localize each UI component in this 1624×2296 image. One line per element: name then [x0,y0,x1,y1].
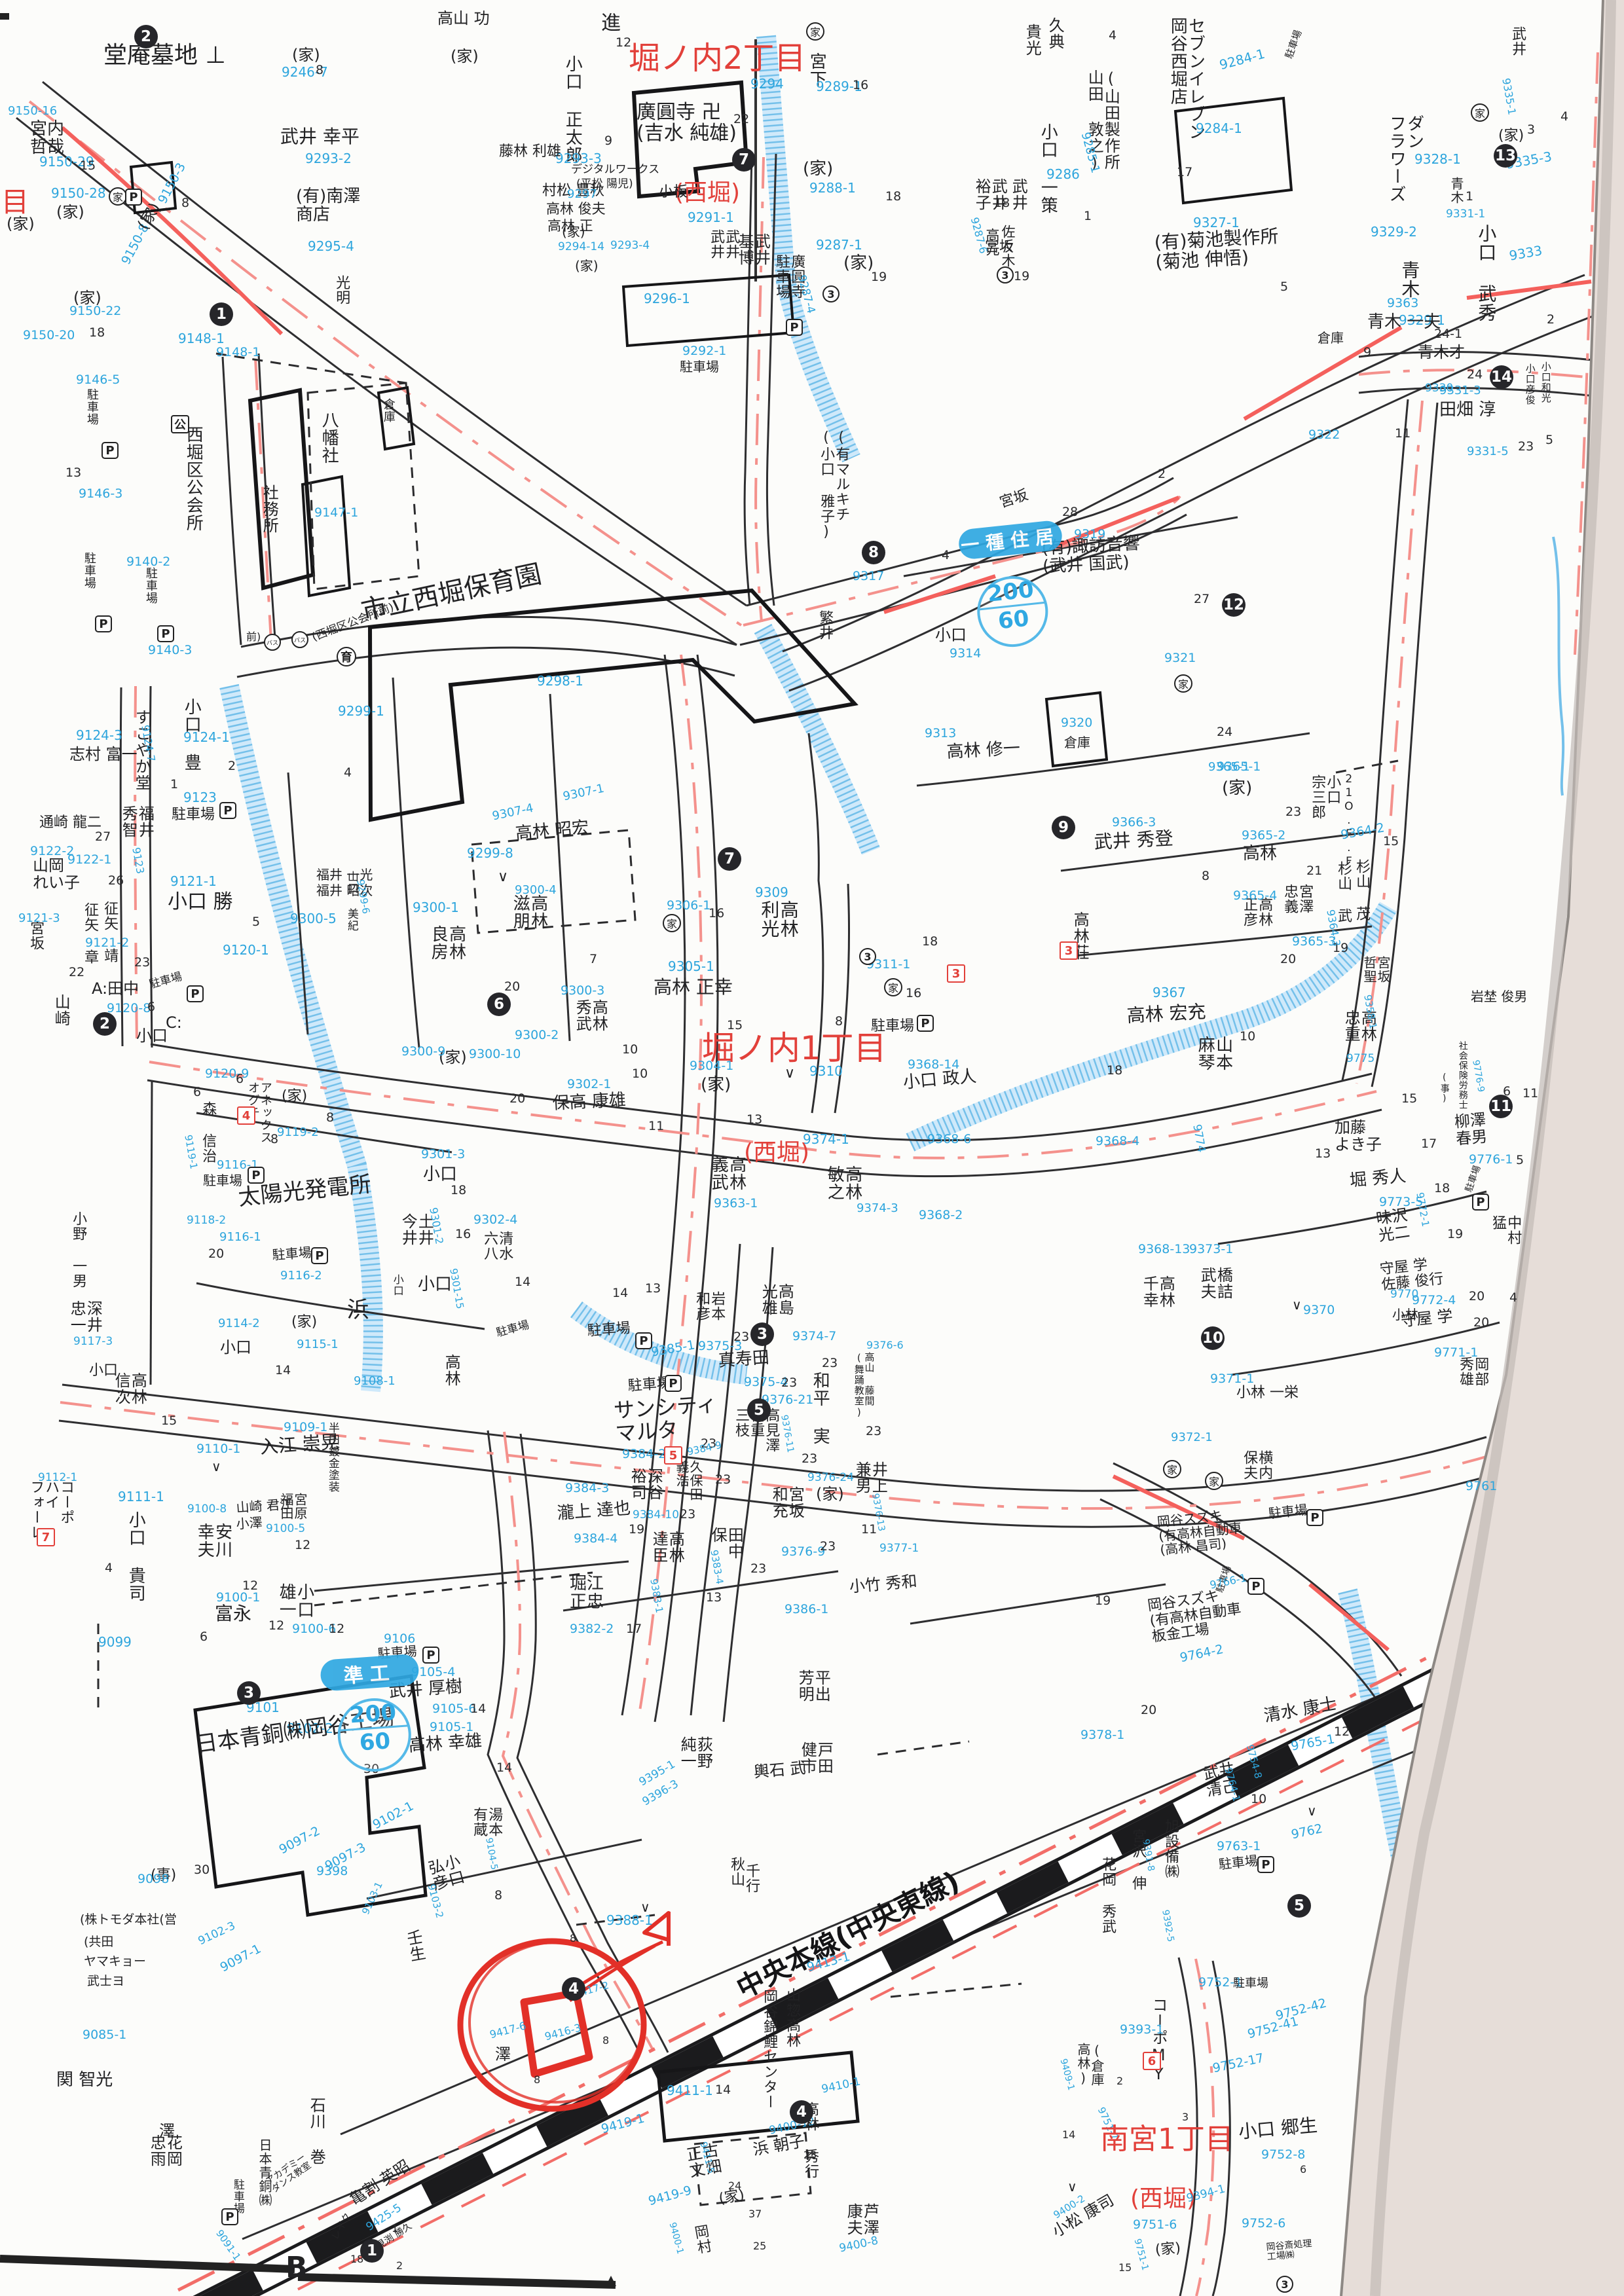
map-label: ∨ [498,869,508,885]
lot-ring-badge: 3 [859,948,876,965]
map-label: 宮原 福田 [279,1493,306,1520]
house-icon: 家 [663,914,681,932]
lot-number: 9374-1 [803,1133,849,1147]
map-label: (家) [282,1089,307,1104]
map-label: (家) [56,204,84,221]
parking-icon: P [1472,1194,1489,1211]
corner-number: 2 [1116,2075,1123,2086]
corner-number: 20 [504,980,520,994]
map-label: 倉庫 [382,398,394,423]
block-number-badge: 7 [718,847,741,871]
parking-icon: P [786,319,803,336]
house-icon: 家 [1174,674,1192,693]
lot-number: 9384-2 [622,1448,666,1461]
map-label: 駐車場 [680,360,719,374]
lot-number: 9329-2 [1371,225,1417,240]
district-label: 目 [1,187,29,217]
map-label: 通崎 龍二 [39,815,101,831]
map-label: 高林 義武 [709,1156,745,1191]
lot-number: 9288-1 [809,181,856,196]
lot-number: 9366-3 [1112,816,1156,829]
map-label: 柳澤 春男 [1454,1112,1488,1148]
lot-number: 9294 [750,77,784,92]
lot-number: 9150-28 [51,187,106,201]
map-label: (共田 [84,1935,113,1949]
lot-number: 9292-1 [682,344,726,358]
map-label: (家) [7,216,35,233]
corner-number: 6 [147,1000,155,1014]
map-label: 岡谷斎処理 工場㈱ [1266,2239,1313,2263]
lot-number: 9124-3 [76,729,122,743]
lot-number: 9099 [98,1635,132,1650]
map-label: 澤 [495,2047,511,2064]
lot-number: 9123 [183,791,217,805]
lot-number: 9299-8 [467,847,513,861]
map-label: 小野 一男 [71,1211,86,1288]
map-label: 高林 宏充 [1126,1002,1206,1027]
corner-number: 4 [1509,1291,1517,1305]
corner-number: 12 [329,1622,344,1636]
lot-number: 9331-1 [1446,208,1485,220]
corner-number: 19 [1095,1594,1111,1608]
map-label: ∨ [1292,1298,1302,1313]
corner-number: 27 [1194,592,1209,606]
map-label: 安川 幸夫 [195,1523,231,1558]
map-label: 宮澤 忠義 [1282,884,1312,914]
map-label: 湯本 有蔵 [471,1807,502,1837]
map-label: 岡部 秀雄 [1458,1357,1488,1387]
lot-number: 9384-4 [574,1532,618,1546]
corner-number: 19 [871,270,887,284]
lot-number: 9150-16 [8,105,57,117]
map-label: 高島 光雄 [760,1283,792,1316]
lot-number: 9368-14 [908,1058,959,1072]
corner-number: 25 [753,2240,766,2251]
map-label: 芦澤 康夫 [845,2203,877,2236]
corner-number: 1 [1466,190,1473,204]
parking-icon: P [101,442,119,459]
corner-number: 30 [194,1863,210,1877]
map-label: 征矢 靖 [102,901,117,963]
house-icon: 家 [109,187,127,206]
map-label: 駐車場 [144,567,157,604]
corner-number: 23 [680,1508,695,1522]
map-label: (事) [1439,1072,1449,1104]
corner-number: 10 [1251,1793,1266,1806]
map-label: 堂庵墓地 ⊥ [103,43,226,69]
map-label: (倉庫 高林) [1076,2043,1103,2086]
lot-number: 9146-3 [79,487,122,501]
corner-number: 18 [1107,1064,1122,1078]
map-label: ダン フラワーズ [1387,115,1423,203]
district-label: 堀ノ内1丁目 [702,1030,887,1066]
corner-number: 13 [706,1591,722,1605]
block-number-badge: 6 [487,993,511,1016]
lot-number: 9116-1 [219,1231,261,1243]
lot-number: 9121-3 [18,912,60,924]
corner-number: 23 [802,1452,817,1466]
map-label: (家) [803,160,833,178]
map-label: 武井 [1010,178,1026,211]
map-label: ヤマキョー [84,1955,146,1969]
lot-number: 9322 [1308,428,1340,442]
map-label: 小口 [220,1339,251,1357]
lot-number: 9100-5 [266,1523,305,1535]
corner-number: 15 [1401,1092,1417,1106]
sheet-marker: B [286,2252,308,2284]
map-label: 岡谷スズキ (有高林自動車 (高林 昌司) [1156,1507,1244,1558]
corner-number: 14 [275,1364,291,1377]
map-label: 杉山 武 [1336,861,1351,923]
house-icon: 家 [1163,1460,1181,1478]
corner-number: 4 [1109,29,1116,43]
corner-number: 2 [1547,313,1555,327]
map-label: A:田中 [92,981,139,998]
lot-number: 9284-1 [1196,122,1242,136]
map-label: 福井 秀智 [120,805,153,838]
lot-number: 9310 [809,1065,843,1079]
lot-number: 9382-2 [570,1622,614,1636]
corner-number: 23 [822,1357,838,1370]
map-label: 森 信治 [200,1101,215,1163]
lot-number: 9365-2 [1242,829,1285,843]
lot-number: 9120-1 [223,943,269,958]
corner-number: 5 [1280,280,1288,294]
corner-number: 8 [1202,869,1209,883]
lot-number: 9377-1 [879,1542,919,1554]
parking-icon: P [1247,1578,1264,1595]
lot-number: 9117-3 [73,1336,113,1347]
map-label: 千行 [744,1863,759,1893]
map-label: 半田鍍金塗装 [326,1422,338,1493]
lot-ring-badge: 3 [822,285,840,302]
parking-icon: P [311,1247,328,1264]
district-label: (西堀) [744,1140,809,1166]
map-label: 小林 [1392,1308,1418,1322]
map-label: 荻野 純一 [678,1736,711,1769]
lot-number: 9393-1 [1120,2023,1164,2037]
block-number-badge: 4 [562,1977,585,2001]
lot-number: 9300-9 [401,1045,445,1059]
lot-number: 9116-2 [280,1269,322,1282]
nursery-icon: 育 [337,647,356,666]
map-label: 志村 富一 [69,746,138,763]
map-label: 高山 功 [437,10,490,27]
corner-number: 12 [295,1539,310,1552]
map-label: 小口 勝 [168,892,233,913]
corner-number: 20 [1141,1704,1156,1717]
corner-number: 22 [733,113,749,126]
lot-number: 9365-1 [1208,761,1250,773]
lot-number: 9314 [950,647,981,661]
corner-number: 7 [589,953,597,966]
map-label: 青木 [1400,261,1419,299]
map-label: ∨ [1067,2180,1077,2195]
map-label: 旭設備㈱ [1163,1819,1178,1879]
map-label: (家) [1498,128,1524,144]
map-label: 宮坂 和充 [770,1486,803,1519]
lot-number: 9368-2 [919,1209,963,1222]
map-label: 前) [246,631,261,642]
corner-number: 18 [885,190,901,204]
lot-number: 9118-2 [187,1214,226,1226]
map-label: 小口和光 [1540,361,1551,403]
corner-number: 5 [1545,433,1553,447]
map-label: 貴光 [1024,24,1040,56]
map-label: 岩本 和彦 [694,1291,724,1321]
corner-number: 23 [820,1540,836,1554]
map-label: 高林 秀武 [574,999,606,1032]
lot-number: 9331-5 [1467,445,1509,458]
map-label: 久保田 義浩 [674,1460,702,1501]
map-label: 高林 滋朋 [511,894,547,930]
lot-number: 9121-2 [85,936,129,950]
map-label: 関 智光 [56,2071,113,2089]
map-label: 高林 俊夫 [546,202,606,217]
map-label: (家) [1154,2241,1181,2259]
corner-number: 8 [316,64,323,77]
lot-number: 9299-1 [338,704,384,719]
map-label: 高林 [1243,845,1277,863]
parking-icon: P [95,615,112,632]
map-label: ∨ [784,1066,795,1082]
lot-number: 9147-1 [314,506,358,520]
corner-number: 8 [534,2074,540,2085]
map-label: 武井 裕子 [973,178,1006,211]
map-label: 宮坂 [985,240,1014,255]
map-label: 武士ヨ [87,1975,124,1988]
lot-number: 9776-1 [1469,1153,1513,1167]
parking-icon: P [219,802,236,819]
map-label: 青木 [1449,177,1463,204]
corner-number: 13 [1315,1147,1331,1161]
lot-number: 9371-1 [1210,1372,1254,1386]
parking-icon: P [221,2208,238,2225]
corner-number: 11 [1395,427,1411,441]
corner-number: 10 [622,1043,638,1057]
lot-number: 9365-4 [1233,889,1277,903]
parking-icon: P [665,1375,682,1392]
corner-number: 16 [906,987,921,1000]
map-label: 武井 幸平 [280,127,360,147]
map-label: 駐車場 [871,1019,914,1034]
parking-icon: P [157,625,174,642]
lot-number: 9374-3 [857,1202,898,1214]
block-number-badge: 3 [237,1681,261,1705]
block-number-badge: 5 [747,1398,771,1422]
map-label: 土井 今井 [399,1213,432,1246]
lot-number: 9298-1 [537,674,583,689]
corner-number: 10 [632,1067,648,1081]
corner-number: 8 [494,1889,502,1903]
corner-number: 4 [1560,110,1568,124]
map-label: 浜 [347,1298,369,1322]
lot-number: 9388-1 [606,1914,653,1928]
lot-number: 9374-7 [792,1330,836,1343]
map-label: 小口 [89,1363,118,1379]
lot-number: 9363-1 [714,1197,758,1211]
lot-number: 9372-1 [1171,1431,1213,1444]
block-number-badge: 3 [750,1322,774,1346]
house-icon: 家 [884,978,902,996]
corner-number: 20 [1280,953,1296,966]
lot-number: 9300-10 [469,1048,521,1061]
lot-number: 9770 [1390,1288,1418,1300]
lot-number: 9411-1 [667,2084,713,2098]
map-page: 堂庵墓地 ⊥宮内 哲哉9150-29159150-28(家)9150-16915… [0,0,1624,2296]
parking-icon: P [248,1167,265,1184]
map-label: 保高 康雄 [552,1091,627,1113]
lot-number: 9368-4 [1096,1135,1139,1148]
lot-number: 9122-1 [67,853,111,867]
lot-ring-badge: 3 [997,266,1014,283]
map-label: 小口 [423,1165,457,1184]
map-label: 石川 巻 [308,2097,324,2165]
lot-number: 9114-2 [218,1317,260,1330]
corner-number: 16 [853,79,868,92]
lot-number: 9119-2 [277,1126,319,1139]
map-label: (家) [451,48,479,65]
map-label: 岡谷錦鯉センター [762,1989,777,2109]
lot-number: 9363 [1387,297,1418,310]
map-label: 山本 麻琴 [1196,1036,1232,1071]
corner-number: 26 [108,874,124,888]
map-label: 小口 雄一 [277,1583,313,1618]
map-label: 橋詰 武夫 [1198,1267,1231,1300]
lot-number: 9300-2 [515,1029,559,1042]
lot-number: 9368-6 [927,1133,971,1146]
lot-number: 9294-14 [558,241,604,253]
map-label: 小口 [392,1274,403,1296]
corner-number: 23 [750,1562,766,1576]
district-label: 堀ノ内2丁目 [629,42,806,76]
block-number-badge: 7 [732,148,756,172]
corner-number: 13 [747,1113,762,1127]
map-label: 藤林 利雄 [499,144,561,160]
map-label: 花岡 秀武 [1100,1857,1115,1934]
corner-number: 17 [626,1622,642,1636]
map-label: デジタルワークス [571,164,659,175]
corner-number: 11 [1522,1087,1538,1101]
map-label: 深谷 裕司 [629,1468,661,1501]
lot-number: 9293-4 [610,240,650,251]
corner-number: 14 [470,1702,486,1716]
lot-number: 9319 [1074,528,1105,541]
map-label: 平出 芳明 [796,1669,829,1702]
block-number-badge: 5 [1287,1894,1311,1918]
lot-number: 9121-1 [170,875,217,889]
map-label: 横内 保夫 [1242,1450,1272,1480]
corner-number: 2 [228,759,236,773]
lot-number: 9398 [316,1865,348,1878]
lot-number: 9100-8 [187,1503,227,1515]
map-label: 高林 千幸 [1141,1275,1173,1308]
map-label: 高林 [443,1354,459,1387]
map-label: (有)南澤 商店 [296,187,360,224]
corner-number: 16 [455,1228,471,1241]
red-box-badge: 3 [947,964,965,983]
lot-number: 9098 [138,1872,169,1886]
house-icon: 家 [806,22,824,41]
lot-number: 9367 [1153,986,1186,1000]
red-box-badge: 6 [1143,2052,1161,2070]
corner-number: 15 [1118,2262,1132,2273]
map-label: 武井 武井 [709,229,739,259]
house-icon: 家 [1205,1472,1223,1490]
corner-number: 23 [1518,440,1534,454]
map-label: 駐車場 [587,1321,631,1339]
red-box-badge: 7 [37,1528,55,1546]
corner-number: 8 [835,1015,843,1029]
lot-number: 9150-20 [23,329,75,342]
block-number-badge: 1 [210,302,233,326]
lot-number: 9301-3 [421,1148,465,1161]
map-label: 真寿田 [718,1349,770,1370]
map-label: 山崎 [52,994,69,1027]
lot-number: 9295-4 [308,240,354,254]
corner-number: 19 [1447,1228,1463,1241]
corner-number: 3 [1527,123,1535,137]
parking-icon: P [187,985,204,1002]
lot-number: 9376-9 [781,1545,825,1559]
corner-number: 23 [781,1376,797,1390]
map-label: 高山 藤間 (舞踊教室) [853,1352,874,1419]
corner-number: 21 [1306,864,1322,878]
map-label: 小口 貴司 [126,1511,144,1602]
map-label: 久典 [1046,17,1063,50]
corner-number: 22 [69,966,84,979]
lot-number: 9327-1 [1193,216,1240,230]
map-label: ∨ [212,1460,221,1474]
corner-number: 8 [181,196,189,210]
corner-number: 23 [866,1425,881,1438]
map-label: 進 [601,13,621,34]
block-number-badge: 1 [360,2239,384,2263]
lot-number: 9751-6 [1133,2218,1177,2232]
map-label: (家) [291,1315,317,1330]
lot-number: 9140-3 [148,644,192,657]
corner-number: 10 [1240,1030,1255,1044]
map-label: 征矢 章 [83,902,98,964]
map-label: 澤 [159,2123,175,2140]
corner-number: 6 [193,1085,201,1099]
corner-number: 20 [1473,1316,1489,1330]
map-label: 高林 正幸 [654,977,733,997]
map-label: 井上 兼男 [853,1461,886,1494]
lot-number: 9300-5 [290,912,337,926]
map-label: ∨ [1307,1804,1317,1819]
map-label: 小口 正太郎 [563,55,581,164]
map-label: 高林 利光 [760,900,798,938]
lot-number: 9300-1 [413,901,459,915]
lot-number: 9384-10 [633,1509,679,1521]
lot-number: 9110-1 [196,1442,240,1456]
lot-number: 9100-1 [216,1591,260,1605]
parking-icon: P [1306,1509,1323,1526]
map-label: 宮内 哲哉 [30,120,64,156]
map-label: 深井 忠一 [68,1300,101,1333]
map-label: 倉庫 [1318,331,1344,346]
lot-number: 9373-1 [1189,1243,1233,1256]
corner-number: 24 [1467,368,1483,382]
district-label: 南宮1丁目 [1100,2124,1234,2155]
lot-number: 9320 [1061,716,1092,730]
corner-number: 18 [451,1184,466,1197]
corner-number: 3 [1182,2111,1189,2123]
lot-number: 9763-1 [1217,1840,1261,1853]
corner-number: 19 [1014,270,1029,283]
corner-number: 24 [728,2180,741,2191]
